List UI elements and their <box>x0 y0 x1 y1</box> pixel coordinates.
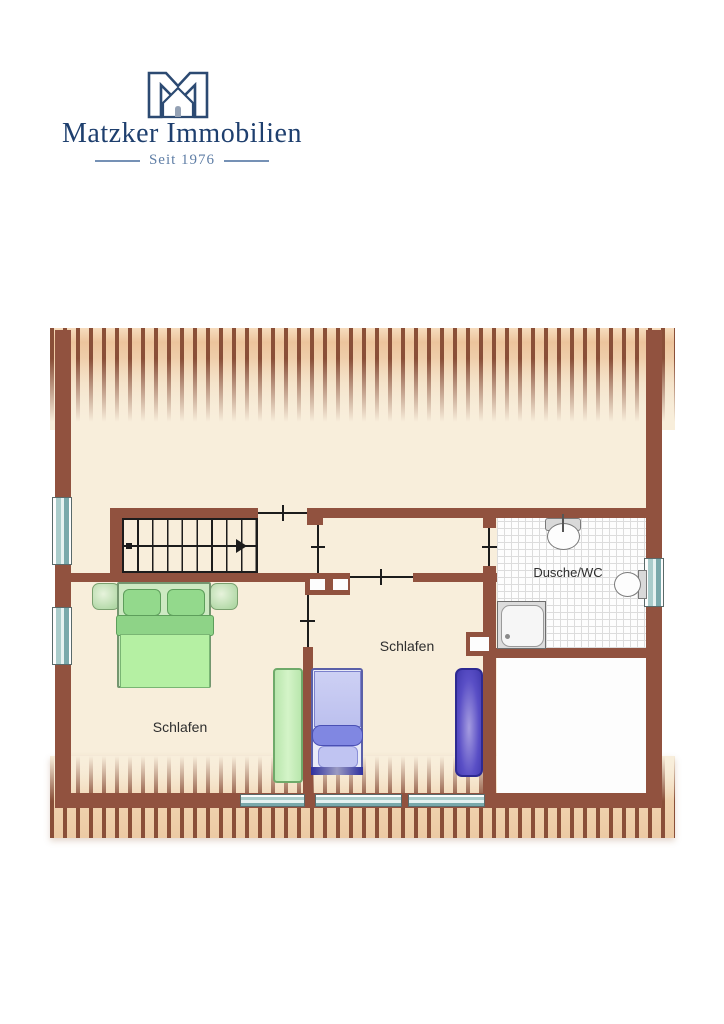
toilet-bowl <box>614 572 641 597</box>
chimney-flue <box>470 637 489 651</box>
wall-stair-top <box>110 508 258 518</box>
opening-tick <box>282 505 284 521</box>
window-icon <box>52 497 72 565</box>
shower-drain <box>505 634 510 639</box>
nightstand-icon <box>92 583 120 610</box>
stair-direction-arrow <box>129 545 239 547</box>
window-icon <box>315 794 402 807</box>
wall-bathroom-left <box>483 566 496 793</box>
stair-arrow-head <box>236 539 247 553</box>
nightstand-icon <box>210 583 238 610</box>
room-label-bathroom: Dusche/WC <box>518 565 618 580</box>
bed-pillow <box>318 746 358 768</box>
opening-tick <box>380 569 382 585</box>
room-label-bedroom-middle: Schlafen <box>367 638 447 654</box>
window-icon <box>408 794 485 807</box>
sink-faucet <box>562 514 564 532</box>
wall-bathroom-left-upper <box>483 518 496 528</box>
bed-pillow <box>123 589 161 616</box>
bed-duvet <box>314 671 361 727</box>
staircase-icon <box>122 518 258 573</box>
floor-plan: Schlafen Schlafen Dusche/WC <box>0 0 724 1024</box>
stair-arrow-start <box>126 543 132 549</box>
opening-tick <box>482 546 497 548</box>
bed-duvet <box>120 634 210 688</box>
bed-blanket <box>312 725 363 746</box>
window-icon <box>52 607 72 665</box>
roof-slope-hatch-top <box>50 328 675 430</box>
opening-tick <box>300 620 315 622</box>
bed-pillow <box>167 589 205 616</box>
chimney-flue <box>310 579 325 590</box>
opening-landing <box>317 525 319 573</box>
opening-tick <box>311 546 325 548</box>
room-label-bedroom-left: Schlafen <box>140 719 220 735</box>
wardrobe-green-icon <box>273 668 303 783</box>
window-icon <box>644 558 664 607</box>
wall-stub <box>307 518 323 525</box>
bed-footboard <box>311 767 363 775</box>
chimney-flue <box>333 579 348 590</box>
wall-corridor-top <box>307 508 662 518</box>
window-icon <box>240 794 305 807</box>
wall-bathroom-bottom <box>483 648 662 658</box>
wardrobe-purple-icon <box>455 668 483 777</box>
shower-inner <box>501 605 544 647</box>
storage-room-floor <box>497 658 646 793</box>
bed-blanket <box>116 615 214 636</box>
